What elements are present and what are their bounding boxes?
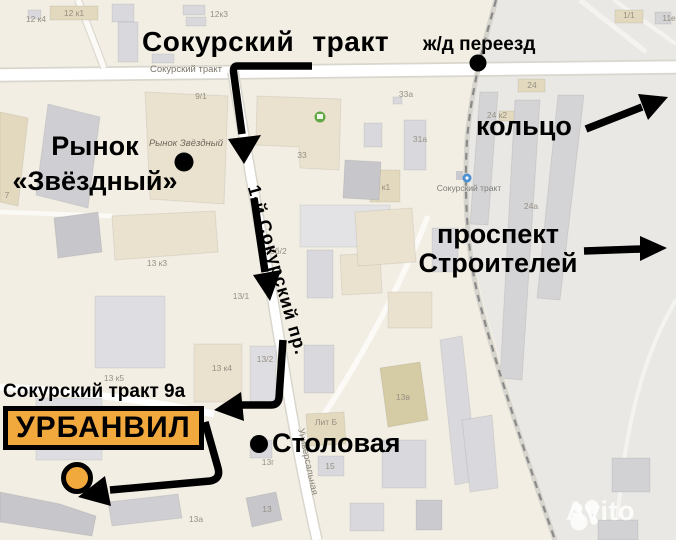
watermark: Avito [566,496,635,527]
market-label: Рынок «Звёздный» [0,129,190,199]
prospekt-label-line2: Строителей [413,249,583,278]
prospekt-label-line1: проспект [413,220,583,249]
market-label-line1: Рынок [0,129,190,164]
annotation-layer: Сокурский тракт ж/д переезд кольцо Рынок… [0,0,676,540]
prospekt-label: проспект Строителей [413,220,583,278]
destination-name-box: УРБАНВИЛ [3,406,204,450]
canteen-label: Столовая [272,429,401,457]
address-label: Сокурский тракт 9а [3,382,185,402]
side-road-label: 1-й Сокурский пр. [244,183,311,357]
ring-road-label: кольцо [476,112,572,140]
market-label-line2: «Звёздный» [0,164,190,199]
main-road-title: Сокурский тракт [142,27,389,56]
avito-logo-icon [566,496,602,534]
route-map-image: 12 к4 12 к1 12к3 9/1 Сокурский тракт Рын… [0,0,676,540]
railway-crossing-label: ж/д переезд [423,35,535,55]
destination-marker [61,462,93,494]
